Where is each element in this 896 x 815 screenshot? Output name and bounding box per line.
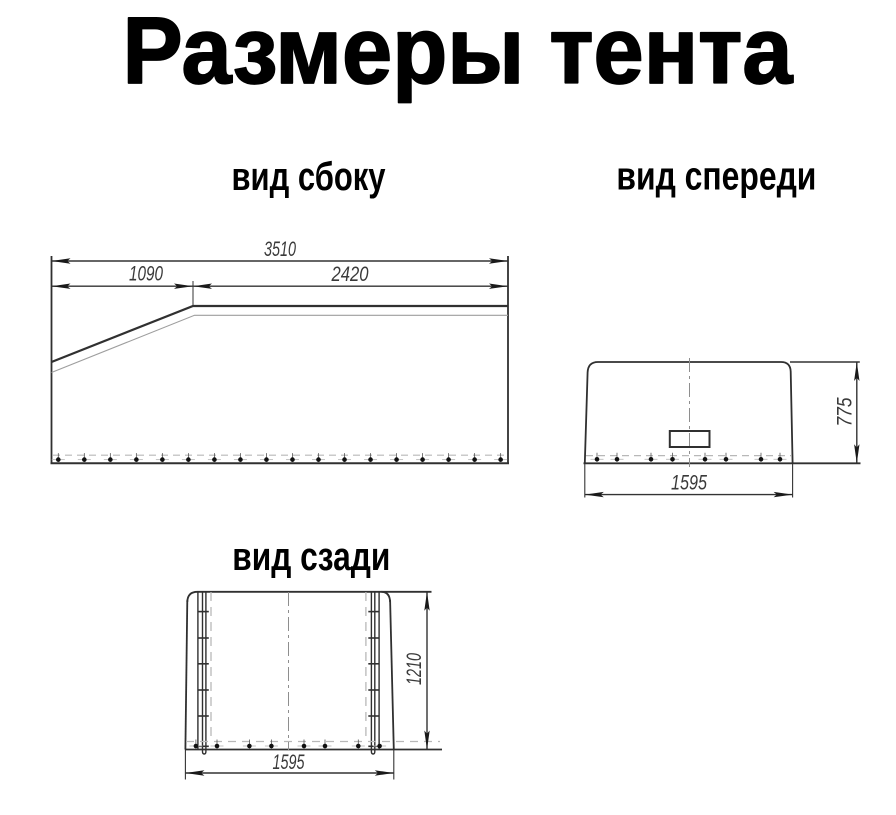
svg-text:Размеры тента: Размеры тента [123,0,794,104]
svg-text:1595: 1595 [273,750,306,774]
svg-text:2420: 2420 [331,262,369,286]
svg-text:3510: 3510 [264,237,296,261]
svg-text:вид сбоку: вид сбоку [232,155,387,199]
svg-text:1210: 1210 [402,653,426,685]
svg-text:вид сзади: вид сзади [232,535,390,579]
svg-text:775: 775 [833,397,857,427]
svg-text:1595: 1595 [671,471,708,495]
svg-text:1090: 1090 [129,262,163,286]
svg-text:вид спереди: вид спереди [616,154,816,198]
